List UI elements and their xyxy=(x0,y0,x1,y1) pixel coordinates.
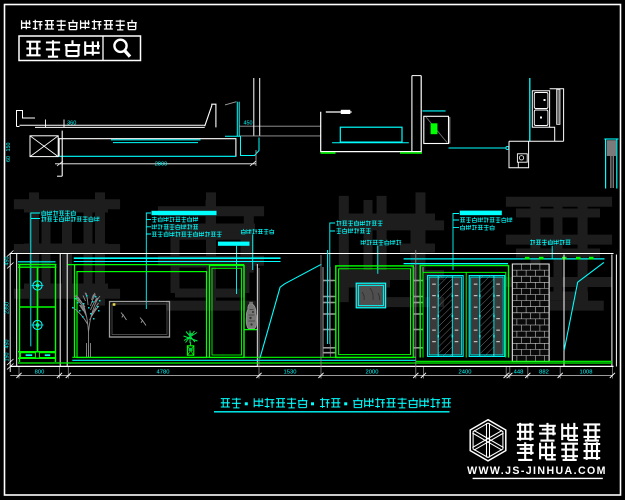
svg-text:1008: 1008 xyxy=(580,369,593,375)
svg-text:2400: 2400 xyxy=(459,369,472,375)
svg-text:2800: 2800 xyxy=(155,161,167,167)
svg-text:60: 60 xyxy=(6,156,12,162)
svg-text:450: 450 xyxy=(5,257,11,266)
svg-text:360: 360 xyxy=(67,121,76,127)
svg-text:450: 450 xyxy=(5,340,11,349)
svg-text:150: 150 xyxy=(6,143,12,152)
svg-text:150: 150 xyxy=(5,353,11,362)
svg-text:4780: 4780 xyxy=(157,369,170,375)
svg-text:2350: 2350 xyxy=(5,302,11,314)
svg-text:448: 448 xyxy=(514,369,524,375)
svg-text:WWW.JS-JINHUA.COM: WWW.JS-JINHUA.COM xyxy=(467,465,607,477)
svg-text:882: 882 xyxy=(539,369,549,375)
svg-text:1530: 1530 xyxy=(284,369,297,375)
svg-text:800: 800 xyxy=(35,369,45,375)
svg-text:2000: 2000 xyxy=(366,369,379,375)
svg-text:450: 450 xyxy=(244,121,253,127)
